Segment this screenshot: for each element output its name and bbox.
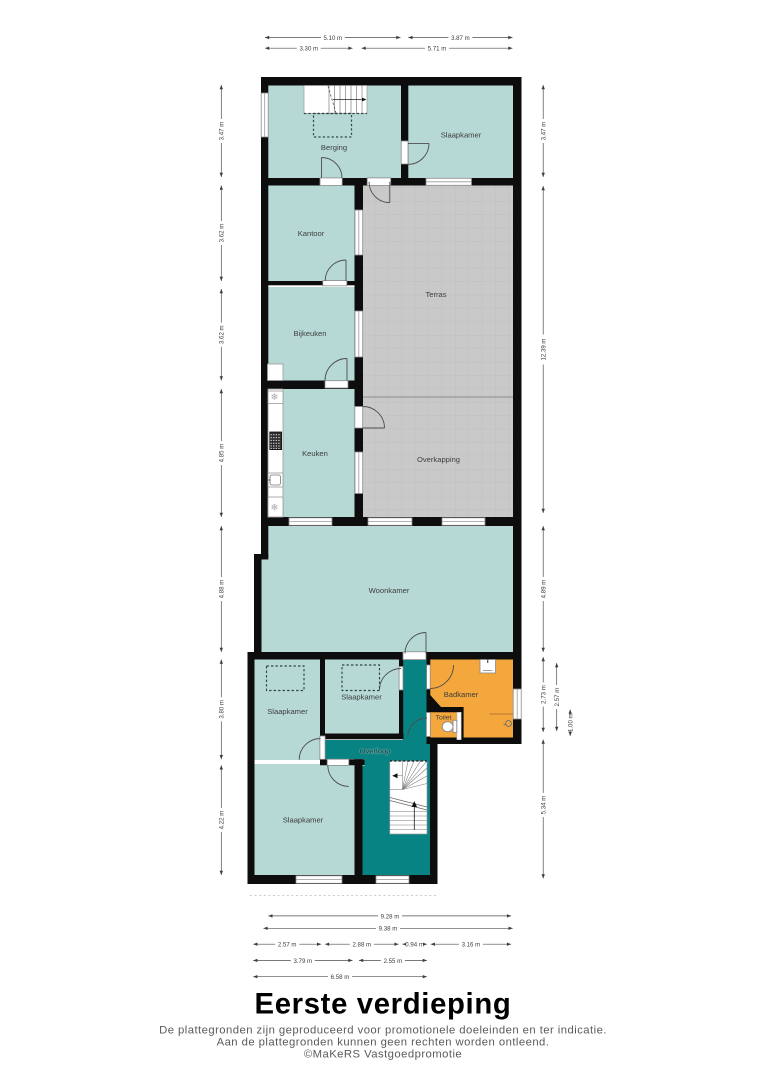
svg-text:Eerste verdieping: Eerste verdieping — [255, 988, 512, 1021]
svg-text:Toilet: Toilet — [436, 714, 452, 721]
svg-text:3.47 m: 3.47 m — [541, 122, 548, 141]
svg-text:❄: ❄ — [271, 392, 279, 403]
svg-text:Berging: Berging — [321, 143, 347, 152]
svg-text:5.10 m: 5.10 m — [323, 35, 342, 42]
svg-text:Overloop: Overloop — [360, 747, 391, 756]
svg-text:Overkapping: Overkapping — [417, 455, 460, 464]
svg-text:De plattegronden zijn geproduc: De plattegronden zijn geproduceerd voor … — [159, 1025, 607, 1037]
svg-text:4.88 m: 4.88 m — [219, 580, 226, 599]
svg-text:Terras: Terras — [425, 290, 446, 299]
svg-text:3.62 m: 3.62 m — [219, 325, 226, 344]
svg-text:Keuken: Keuken — [302, 449, 328, 458]
svg-text:9.28 m: 9.28 m — [381, 913, 400, 920]
svg-text:4.22 m: 4.22 m — [219, 811, 226, 830]
svg-text:Slaapkamer: Slaapkamer — [441, 131, 482, 140]
svg-text:3.87 m: 3.87 m — [451, 35, 470, 42]
svg-text:2.57 m: 2.57 m — [554, 688, 561, 707]
svg-text:1.00 m: 1.00 m — [568, 713, 575, 732]
svg-text:Badkamer: Badkamer — [444, 690, 479, 699]
svg-text:9.38 m: 9.38 m — [379, 926, 398, 933]
svg-text:Slaapkamer: Slaapkamer — [267, 707, 308, 716]
svg-text:Slaapkamer: Slaapkamer — [341, 693, 382, 702]
svg-text:Slaapkamer: Slaapkamer — [283, 816, 324, 825]
svg-text:©MaKeRS Vastgoedpromotie: ©MaKeRS Vastgoedpromotie — [304, 1049, 462, 1061]
svg-text:2.57 m: 2.57 m — [278, 942, 297, 949]
svg-text:3.30 m: 3.30 m — [299, 46, 318, 53]
svg-text:5.34 m: 5.34 m — [541, 796, 548, 815]
svg-text:3.16 m: 3.16 m — [462, 942, 481, 949]
svg-text:5.71 m: 5.71 m — [428, 46, 447, 53]
svg-text:3.47 m: 3.47 m — [219, 122, 226, 141]
svg-text:2.55 m: 2.55 m — [384, 958, 403, 965]
svg-text:6.58 m: 6.58 m — [331, 974, 350, 981]
svg-text:3.80 m: 3.80 m — [219, 700, 226, 719]
svg-text:4.85 m: 4.85 m — [219, 444, 226, 463]
svg-text:4.89 m: 4.89 m — [541, 580, 548, 599]
svg-text:2.73 m: 2.73 m — [541, 685, 548, 704]
svg-text:2.88 m: 2.88 m — [352, 942, 371, 949]
svg-text:Kantoor: Kantoor — [298, 229, 325, 238]
svg-text:Bijkeuken: Bijkeuken — [294, 329, 327, 338]
svg-text:3.79 m: 3.79 m — [293, 958, 312, 965]
svg-text:❄: ❄ — [271, 503, 279, 514]
svg-text:12.39 m: 12.39 m — [541, 338, 548, 360]
svg-text:Woonkamer: Woonkamer — [369, 586, 410, 595]
svg-text:3.62 m: 3.62 m — [219, 224, 226, 243]
svg-text:0.94 m: 0.94 m — [405, 942, 424, 949]
svg-text:Aan de plattegronden kunnen ge: Aan de plattegronden kunnen geen rechten… — [217, 1037, 550, 1049]
